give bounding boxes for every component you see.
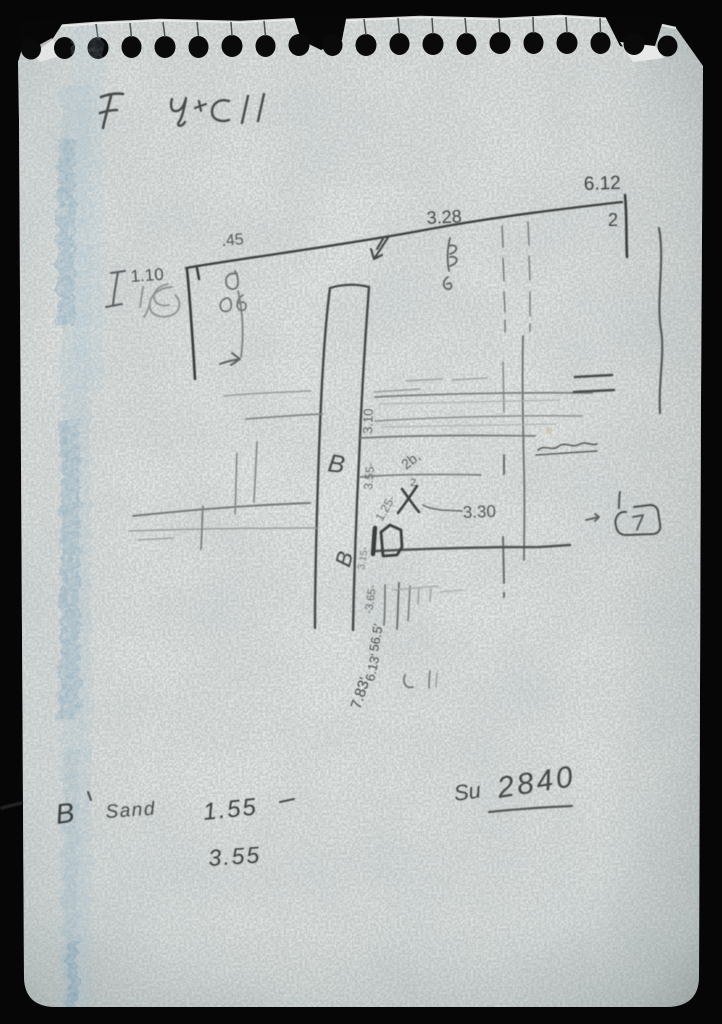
svg-text:2: 2 [410, 477, 416, 489]
svg-text:6.12: 6.12 [583, 173, 621, 195]
svg-text:3.10: 3.10 [360, 408, 376, 434]
svg-text:3.55-: 3.55- [361, 462, 377, 490]
svg-text:Sand: Sand [105, 799, 157, 823]
svg-text:1.10: 1.10 [130, 265, 164, 286]
svg-text:Su: Su [452, 777, 482, 806]
svg-text:2: 2 [608, 210, 618, 230]
svg-text:1.55: 1.55 [202, 793, 259, 826]
svg-text:3.30: 3.30 [462, 502, 496, 522]
svg-text:3.28: 3.28 [426, 206, 462, 228]
svg-text:3.55: 3.55 [208, 841, 262, 871]
svg-text:.45: .45 [221, 231, 245, 250]
